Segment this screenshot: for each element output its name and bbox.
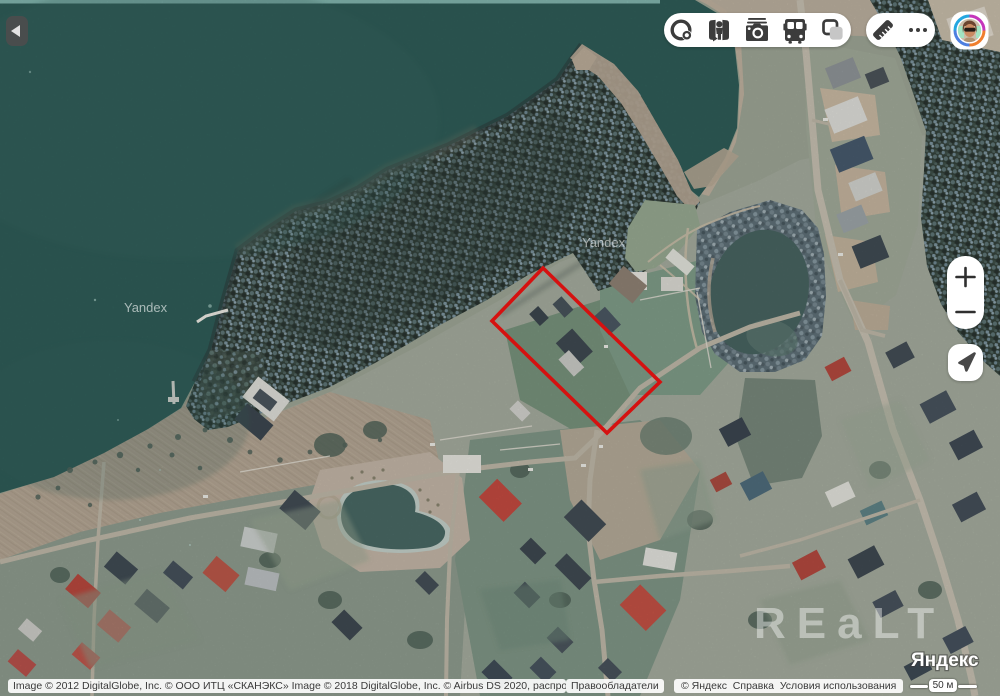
svg-text:Yandex: Yandex — [124, 300, 168, 315]
svg-text:Яндекс: Яндекс — [911, 650, 979, 671]
svg-text:REaLT: REaLT — [754, 599, 945, 648]
svg-text:Yandex: Yandex — [582, 235, 626, 250]
